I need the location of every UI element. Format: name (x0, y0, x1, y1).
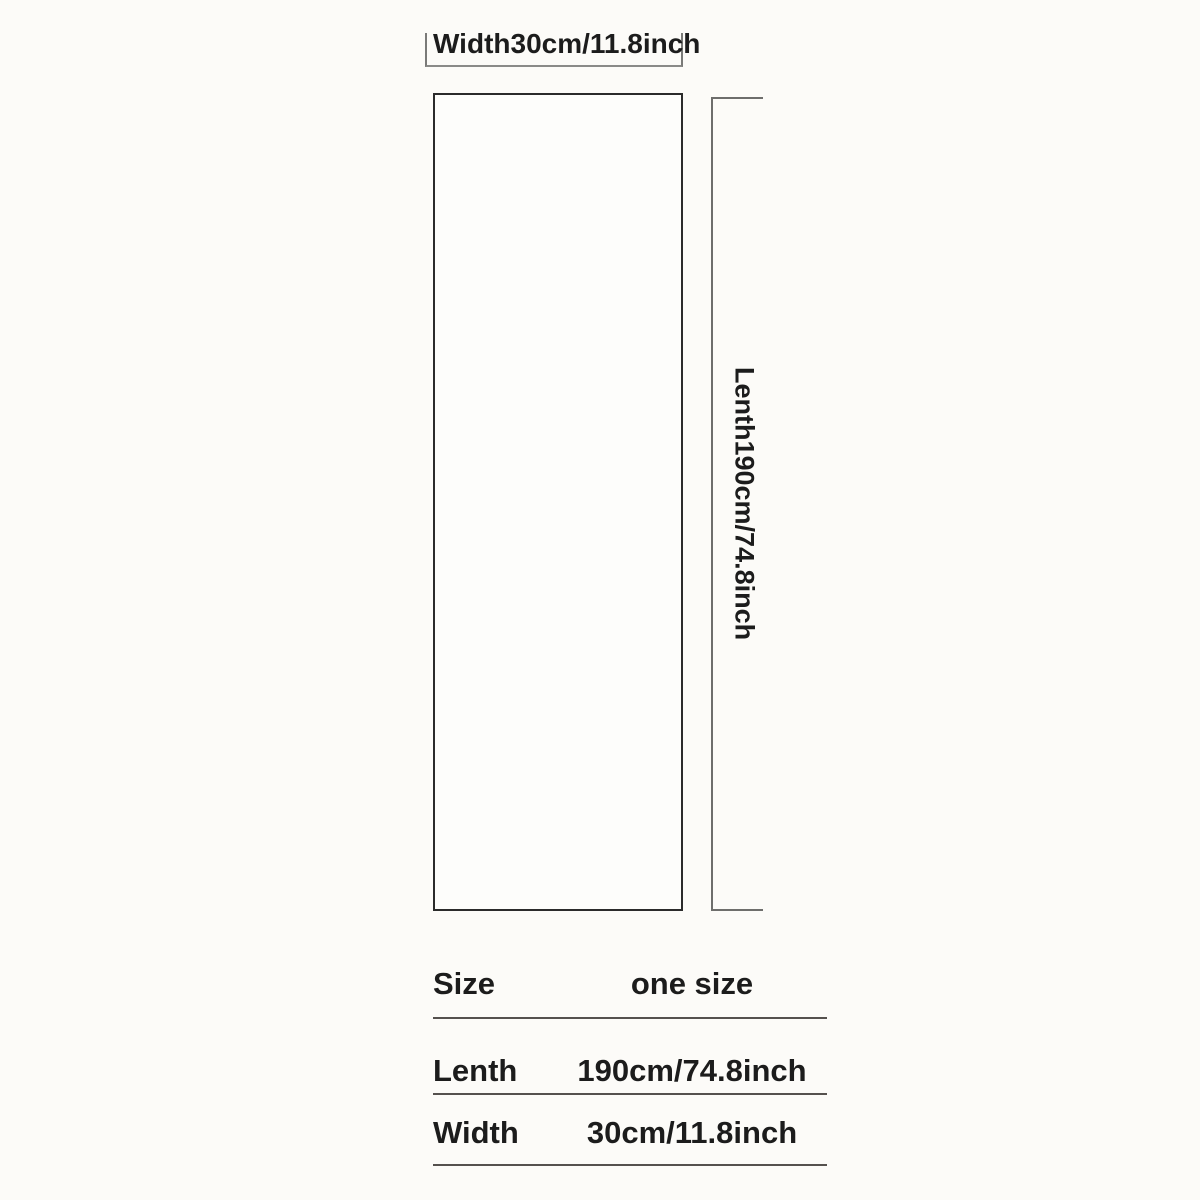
row-value: one size (555, 965, 829, 1003)
row-label: Lenth (433, 1052, 555, 1090)
row-label: Size (433, 965, 555, 1003)
row-value: 190cm/74.8inch (555, 1052, 829, 1090)
table-divider (433, 1164, 827, 1166)
length-dimension-label: Lenth190cm/74.8inch (713, 97, 775, 911)
product-outline-rect (433, 93, 683, 911)
table-divider (433, 1017, 827, 1019)
table-row-width: Width 30cm/11.8inch (433, 1114, 829, 1152)
row-label: Width (433, 1114, 555, 1152)
table-divider (433, 1093, 827, 1095)
row-value: 30cm/11.8inch (555, 1114, 829, 1152)
table-row-length: Lenth 190cm/74.8inch (433, 1052, 829, 1090)
size-chart-page: Width30cm/11.8inch Lenth190cm/74.8inch S… (0, 0, 1200, 1200)
width-dimension-label: Width30cm/11.8inch (433, 28, 683, 60)
table-row-size: Size one size (433, 965, 829, 1003)
